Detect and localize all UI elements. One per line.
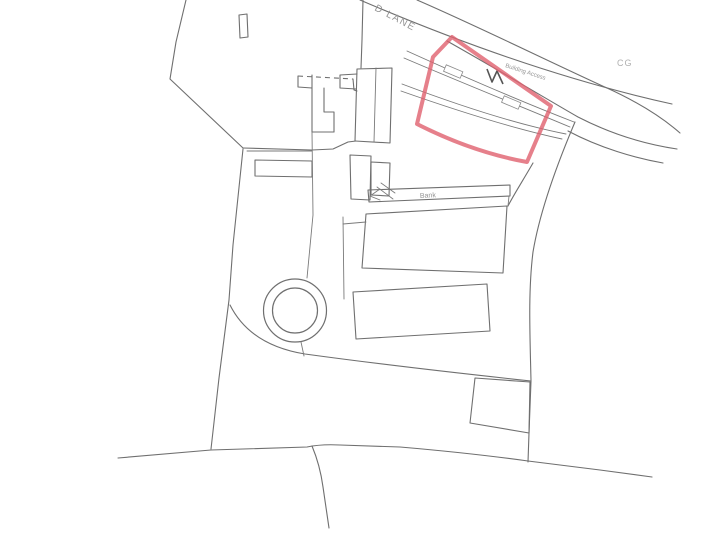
buildings — [239, 14, 530, 433]
outbuilding-hatch — [377, 183, 395, 199]
stepped-building-dashed-edge — [298, 76, 353, 79]
road-fan-line-4 — [568, 131, 663, 163]
track-label-box — [502, 96, 521, 109]
road-edge-north — [360, 0, 672, 104]
bank-label: Bank — [420, 192, 437, 200]
stepped-building — [298, 76, 312, 88]
tank-inner-ring — [273, 288, 318, 333]
bottom-branch-south — [312, 446, 329, 528]
parcel-boundaries — [118, 0, 652, 528]
area-code-label: CG — [617, 58, 633, 68]
lower-right-parcel — [470, 378, 530, 433]
left-boundary-upper — [170, 0, 243, 148]
left-connector-horizontal — [343, 222, 366, 224]
small-building-top-left — [239, 14, 248, 38]
left-connector-vertical — [343, 217, 344, 299]
middle-parcel-bottom-diagonal — [230, 305, 531, 381]
stepped-building — [324, 88, 334, 132]
site-plan-page: D LANE CG Building Access Bank — [0, 0, 720, 540]
red-corner-link — [508, 163, 533, 206]
left-boundary-lower — [211, 149, 243, 449]
tall-building-inner-wall — [374, 68, 376, 142]
large-building — [362, 206, 507, 273]
top-parcel-right-edge — [361, 0, 363, 68]
outbuilding — [371, 162, 390, 196]
tall-building — [355, 68, 392, 143]
lower-building — [353, 284, 490, 339]
small-range-rect — [255, 160, 312, 177]
red-plot-outline — [417, 37, 551, 162]
tank-connector-top — [307, 132, 313, 278]
tall-building-notch — [340, 74, 357, 89]
right-boundary — [528, 122, 575, 462]
bottom-boundary — [118, 445, 652, 477]
parcel-edge-horizontal — [243, 141, 356, 150]
site-plan-svg: D LANE CG Building Access Bank — [0, 0, 720, 540]
road-name-label: D LANE — [373, 3, 418, 34]
tank-circle — [264, 132, 327, 356]
